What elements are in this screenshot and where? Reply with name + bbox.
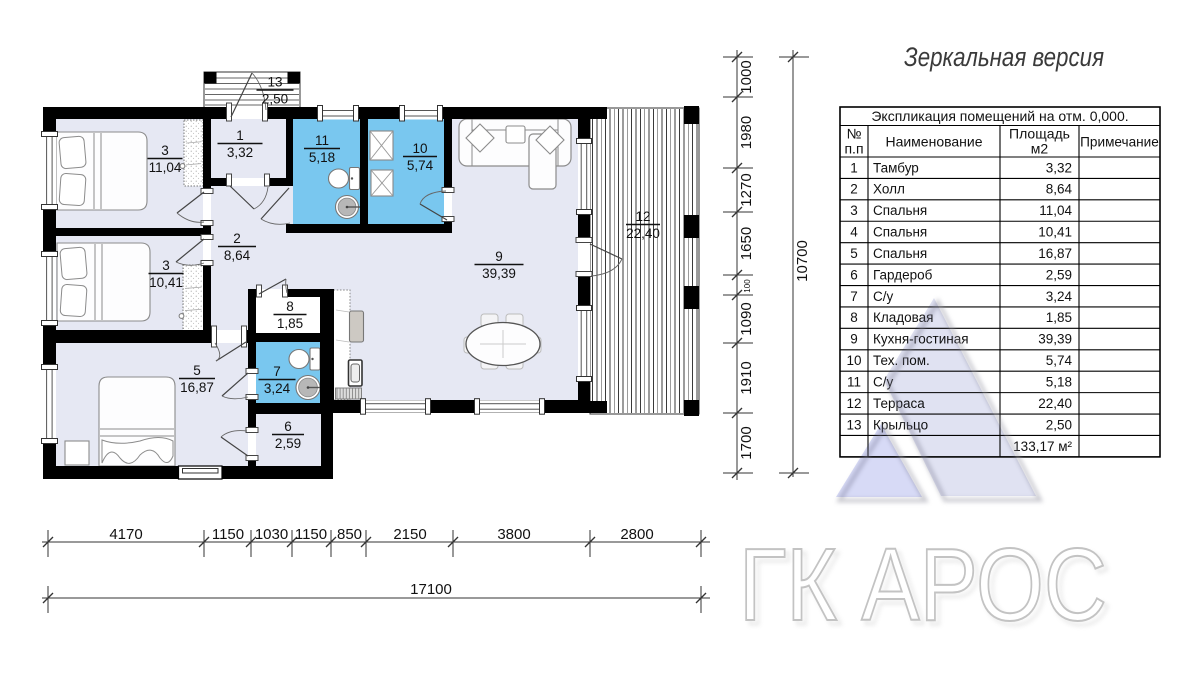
svg-text:Зеркальная версия: Зеркальная версия [904, 42, 1104, 72]
svg-text:С/у: С/у [873, 289, 894, 304]
svg-text:Наименование: Наименование [885, 134, 982, 150]
svg-text:11: 11 [315, 133, 329, 148]
svg-text:1030: 1030 [255, 526, 288, 543]
svg-text:9: 9 [495, 249, 503, 264]
svg-text:6: 6 [284, 419, 292, 434]
svg-text:2,50: 2,50 [262, 92, 288, 107]
svg-text:12: 12 [846, 396, 861, 411]
svg-text:Примечание: Примечание [1080, 135, 1159, 150]
svg-text:10,41: 10,41 [149, 275, 183, 290]
svg-text:7: 7 [273, 364, 281, 379]
svg-text:2,59: 2,59 [275, 436, 301, 451]
svg-text:Площадь: Площадь [1009, 126, 1070, 142]
svg-text:11: 11 [847, 375, 861, 390]
svg-text:1980: 1980 [738, 116, 755, 149]
svg-text:5: 5 [193, 363, 201, 378]
svg-text:8,64: 8,64 [1046, 182, 1073, 197]
svg-text:1: 1 [236, 128, 244, 143]
svg-text:2: 2 [850, 182, 858, 197]
svg-text:Тамбур: Тамбур [873, 160, 919, 175]
svg-text:1: 1 [850, 160, 858, 175]
svg-text:1,85: 1,85 [1046, 310, 1072, 325]
svg-text:3: 3 [162, 258, 170, 273]
svg-text:Экспликация помещений на отм.: Экспликация помещений на отм. 0,000. [871, 108, 1128, 124]
svg-text:3800: 3800 [497, 526, 530, 543]
svg-text:5,18: 5,18 [309, 150, 335, 165]
svg-text:3: 3 [161, 143, 169, 158]
svg-text:5: 5 [850, 246, 858, 261]
svg-text:3,24: 3,24 [264, 381, 291, 396]
svg-text:10: 10 [412, 141, 427, 156]
svg-text:13: 13 [267, 75, 282, 90]
svg-text:10: 10 [846, 353, 861, 368]
svg-text:1150: 1150 [212, 526, 244, 543]
svg-text:10700: 10700 [794, 240, 811, 282]
svg-text:1650: 1650 [738, 227, 755, 260]
svg-text:1910: 1910 [738, 361, 755, 394]
svg-text:3,32: 3,32 [1046, 160, 1072, 175]
svg-text:1000: 1000 [738, 60, 755, 93]
svg-text:м2: м2 [1031, 141, 1049, 157]
svg-text:13: 13 [846, 417, 861, 432]
svg-text:16,87: 16,87 [1038, 246, 1072, 261]
svg-text:100: 100 [743, 279, 752, 293]
svg-text:1700: 1700 [738, 426, 755, 459]
svg-text:850: 850 [337, 526, 362, 543]
svg-text:8: 8 [286, 299, 294, 314]
svg-text:8,64: 8,64 [224, 248, 251, 263]
svg-text:22,40: 22,40 [626, 226, 660, 241]
svg-text:2150: 2150 [393, 526, 426, 543]
svg-text:6: 6 [850, 267, 858, 282]
svg-text:3: 3 [850, 203, 858, 218]
svg-text:Спальня: Спальня [873, 203, 927, 218]
svg-text:№: № [846, 126, 861, 142]
svg-text:11,04: 11,04 [1039, 203, 1072, 218]
svg-text:2: 2 [233, 231, 241, 246]
svg-text:9: 9 [850, 332, 858, 347]
svg-text:Холл: Холл [873, 182, 905, 197]
svg-text:5,18: 5,18 [1046, 375, 1072, 390]
svg-text:Спальня: Спальня [873, 225, 927, 240]
svg-text:16,87: 16,87 [180, 380, 214, 395]
svg-text:1090: 1090 [738, 302, 755, 335]
svg-text:3,24: 3,24 [1046, 289, 1073, 304]
svg-text:17100: 17100 [410, 581, 452, 598]
svg-text:39,39: 39,39 [482, 266, 516, 281]
svg-text:5,74: 5,74 [407, 158, 434, 173]
svg-text:39,39: 39,39 [1038, 332, 1072, 347]
svg-text:11,04: 11,04 [149, 160, 182, 175]
svg-text:8: 8 [850, 310, 858, 325]
svg-text:2,50: 2,50 [1046, 417, 1072, 432]
svg-text:5,74: 5,74 [1046, 353, 1073, 368]
svg-text:4170: 4170 [109, 526, 142, 543]
svg-text:ГК АРОС: ГК АРОС [739, 527, 1107, 642]
svg-text:10,41: 10,41 [1038, 225, 1072, 240]
svg-text:2,59: 2,59 [1046, 267, 1072, 282]
svg-text:1,85: 1,85 [277, 316, 303, 331]
svg-text:133,17 м²: 133,17 м² [1013, 439, 1072, 454]
svg-text:п.п: п.п [844, 141, 863, 157]
svg-text:22,40: 22,40 [1038, 396, 1072, 411]
svg-text:4: 4 [850, 225, 858, 240]
svg-text:2800: 2800 [620, 526, 653, 543]
svg-text:3,32: 3,32 [227, 145, 253, 160]
svg-text:1150: 1150 [295, 526, 327, 543]
svg-text:Гардероб: Гардероб [873, 267, 933, 282]
svg-text:Спальня: Спальня [873, 246, 927, 261]
svg-text:7: 7 [850, 289, 858, 304]
svg-text:12: 12 [635, 209, 650, 224]
svg-text:1270: 1270 [738, 173, 755, 206]
